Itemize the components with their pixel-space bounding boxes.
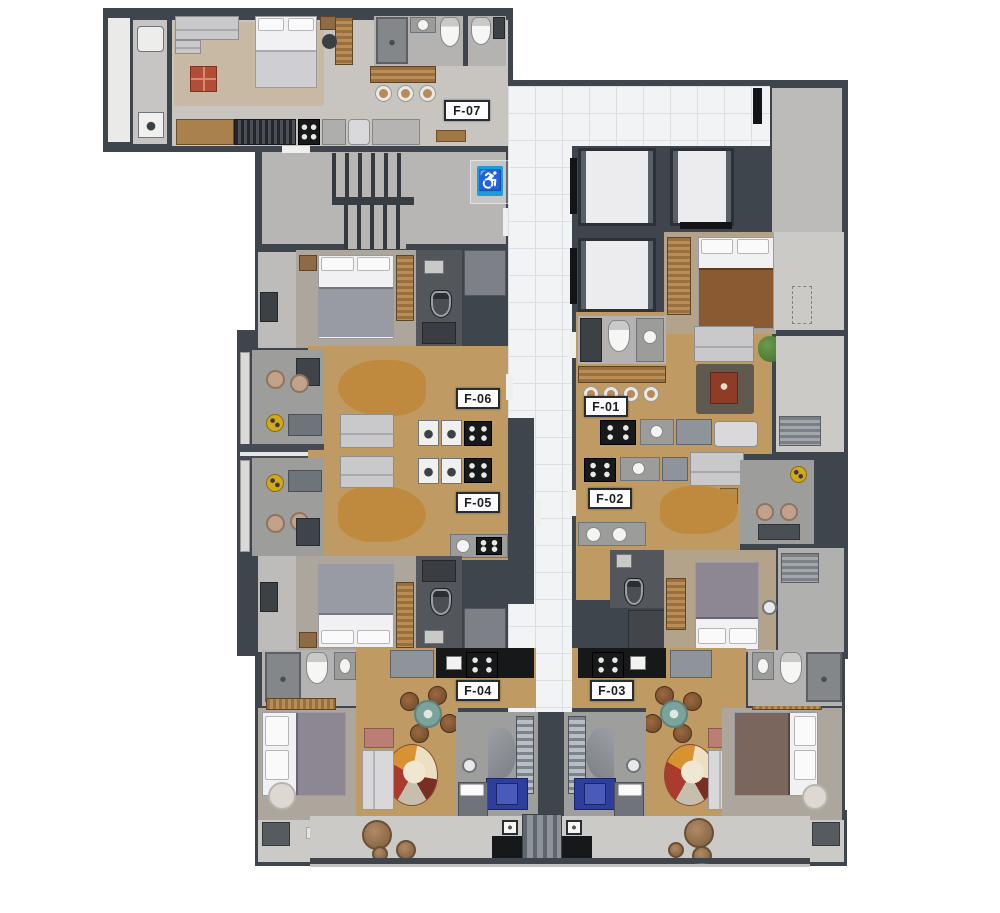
balcony-marking-f01 [792,286,812,324]
pillow [701,239,733,254]
pillow [460,784,484,796]
pillow [265,750,289,780]
balcony-strip-f07 [108,18,130,142]
bar-counter-f01 [578,366,666,383]
shower-f04 [265,652,301,702]
bar-stool [644,387,658,401]
bath-sink-f06 [424,260,444,274]
hall-cabinet-f05 [260,582,278,612]
wall-bath-divider-f07 [463,16,468,66]
kitchen-counter-wood-f07 [176,119,234,145]
mirror-f03 [626,758,641,773]
balcony-chair [756,503,774,521]
stove-f07 [298,119,320,145]
grill-f02 [790,466,807,483]
bed-blanket-f03 [735,713,790,795]
bath-sink-f02 [616,554,632,568]
pillow [288,18,314,31]
elevator-3 [578,238,656,312]
toilet-f07-wc [471,17,491,45]
kitchen-counter2-f07 [372,119,420,145]
stove-f05 [464,458,492,483]
sink-basin [632,462,645,475]
pillow [265,716,289,746]
bath-sink-f05 [424,630,444,644]
toilet-f02 [624,578,644,606]
shaft-f06 [464,250,506,296]
washer-f06 [418,420,439,446]
elevator-door-slot [680,222,732,229]
balcony-rail-f06 [240,352,250,448]
hall-cabinet-f06 [260,292,278,322]
sink-basin [456,539,470,553]
floor-plan: ♿ F-07 F-06 F-05 F-01 F-02 F-04 F-03 [0,0,1000,913]
balcony-chair [780,503,798,521]
wardrobe-f05 [396,582,414,648]
washer-basin [612,527,627,542]
washer-f06-2 [441,420,462,446]
toilet-f01 [608,320,630,352]
nightstand-f07 [320,16,336,30]
sofa-f06 [340,414,394,448]
bar-stool [398,86,413,101]
pillow [698,628,726,644]
balcony-chair [266,514,285,533]
unit-label-f02: F-02 [588,488,632,509]
dining-table-f04 [414,700,442,728]
ac-condenser-f01 [779,416,821,446]
accessibility-icon: ♿ [477,166,503,196]
balcony-chair [290,374,309,393]
ac-condenser-f02 [781,553,819,583]
kitchen-sink-f04 [446,656,462,670]
shower-f07 [376,17,408,64]
ottoman-f07 [190,66,217,92]
stove-f03 [592,652,624,678]
pillow [794,716,816,746]
pillow [794,750,816,780]
armchair-cushion [584,783,606,805]
fridge-f07 [348,119,370,145]
sofa-f05 [340,456,394,488]
grill-f06 [266,414,284,432]
door-f07-stairs [282,146,310,153]
kitchen-counter-f02 [662,457,688,481]
pillow [321,630,354,644]
unit-label-f06: F-06 [456,388,500,409]
mirror-f04 [462,758,477,773]
headboard-f04 [266,698,336,710]
bed-blanket-f02 [696,563,758,619]
elevator-1 [578,148,656,226]
door-f02 [569,490,576,516]
pillow [737,239,769,254]
sofa-f01 [694,326,754,362]
washer-basin [586,527,601,542]
toilet-f07 [440,17,460,47]
laundry-sink [137,26,164,52]
elevator-door-slot [570,248,577,304]
stove-f04 [466,652,498,678]
mirror-f02 [762,600,777,615]
pillow [357,257,390,271]
coffee-table-f01 [710,372,738,404]
bar-stool [420,86,435,101]
rug-f05 [338,486,426,542]
stair-flight-upper [332,153,406,197]
unit-label-f05: F-05 [456,492,500,513]
toilet-f06 [430,290,452,318]
balcony-counter-f05 [288,470,322,492]
fridge-f01 [714,421,758,447]
washing-machine-icon [138,112,164,138]
balcony-chair [266,370,285,389]
sofa-f02 [690,452,744,486]
stair-landing [332,197,414,205]
nightstand-f06 [299,255,317,271]
kitchen-counter-f07 [322,119,346,145]
wall-corridor-chunk [508,418,534,604]
toilet-f03 [780,652,802,684]
balcony-counter-f06 [288,414,322,436]
ac-unit-f04 [262,822,290,846]
kitchen-cabinet-f03 [670,650,712,678]
pillow [258,18,284,31]
desk-chair-f07 [322,34,337,49]
doormat [566,820,582,835]
wardrobe-f01 [667,237,691,315]
plant-pot [396,840,416,860]
wardrobe-f06 [396,255,414,321]
bar-counter-f07 [370,66,436,83]
sink-basin [339,658,351,674]
technical-room-floor [772,88,842,236]
doormat [502,820,518,835]
unit-label-f01: F-01 [584,396,628,417]
toilet-f04 [306,652,328,684]
dining-table-f03 [660,700,688,728]
bar-stool [376,86,391,101]
sink-basin [757,658,769,674]
plant-pot [668,842,684,858]
pillow [729,628,757,644]
grill-f05 [266,474,284,492]
bed-blanket-f05 [319,565,393,615]
plant-pot [692,846,712,866]
sofa-f07 [175,16,239,40]
shower-room-f02 [628,610,666,650]
balcony-bench-f02 [758,524,800,540]
shower-f05 [422,560,456,582]
sink-basin [417,19,429,31]
balcony-rail-f05 [240,460,250,552]
bath-cabinet-f07 [493,17,505,39]
unit-label-f07: F-07 [444,100,490,121]
shower-f03 [806,652,842,702]
stair-flight-lower [344,205,406,249]
divider-panel-center [522,814,562,862]
sink-basin [643,330,657,344]
bed-blanket-f06 [319,287,393,337]
stove-f06 [464,421,492,446]
stove-f02 [584,458,616,482]
ac-unit-f03 [812,822,840,846]
round-rug-f03 [802,784,828,810]
curtain-f04 [488,728,516,778]
unit-label-f03: F-03 [590,680,634,701]
elevator-door-slot [570,158,577,214]
cooktop-f05 [476,537,502,555]
curtain-f03 [586,728,614,778]
kitchen-cabinet-f07 [234,119,296,145]
bed-blanket-f01 [699,268,773,328]
pillow [618,784,642,796]
washer-f05-2 [441,458,462,484]
shower-f06 [422,322,456,344]
unit-label-f04: F-04 [456,680,500,701]
kitchen-cabinet-f04 [390,650,434,678]
door-f06 [506,374,513,400]
door-f05 [534,500,541,526]
sink-basin [650,425,663,438]
rug-f06 [338,360,426,416]
door-f01 [569,332,576,358]
kitchen-counter-f01 [676,419,712,445]
washer-f05 [418,458,439,484]
elevator-2 [670,148,734,226]
pouf-f04 [364,728,394,748]
parapet-rail-light [310,864,810,867]
bench-f02 [666,578,686,630]
pillow [357,630,390,644]
door-technical-room [753,88,762,124]
round-rug-f04 [268,782,296,810]
balcony-bench-f05 [296,518,320,546]
toilet-f05 [430,588,452,616]
plant-pot [684,818,714,848]
stove-f01 [600,420,636,445]
kitchen-sink-f03 [630,656,646,670]
bed-blanket-f04 [296,713,345,795]
sofa-f04 [362,750,394,810]
bed-blanket-f07 [256,50,316,87]
corridor [508,86,572,712]
parapet-rail [310,858,810,863]
pillow [321,257,354,271]
nightstand-f05 [299,632,317,648]
bath-cabinet-f01 [580,318,602,362]
bench-f07 [436,130,466,142]
desk-f07 [335,17,353,65]
armchair-cushion [496,783,518,805]
sofa-chaise-f07 [175,40,201,54]
